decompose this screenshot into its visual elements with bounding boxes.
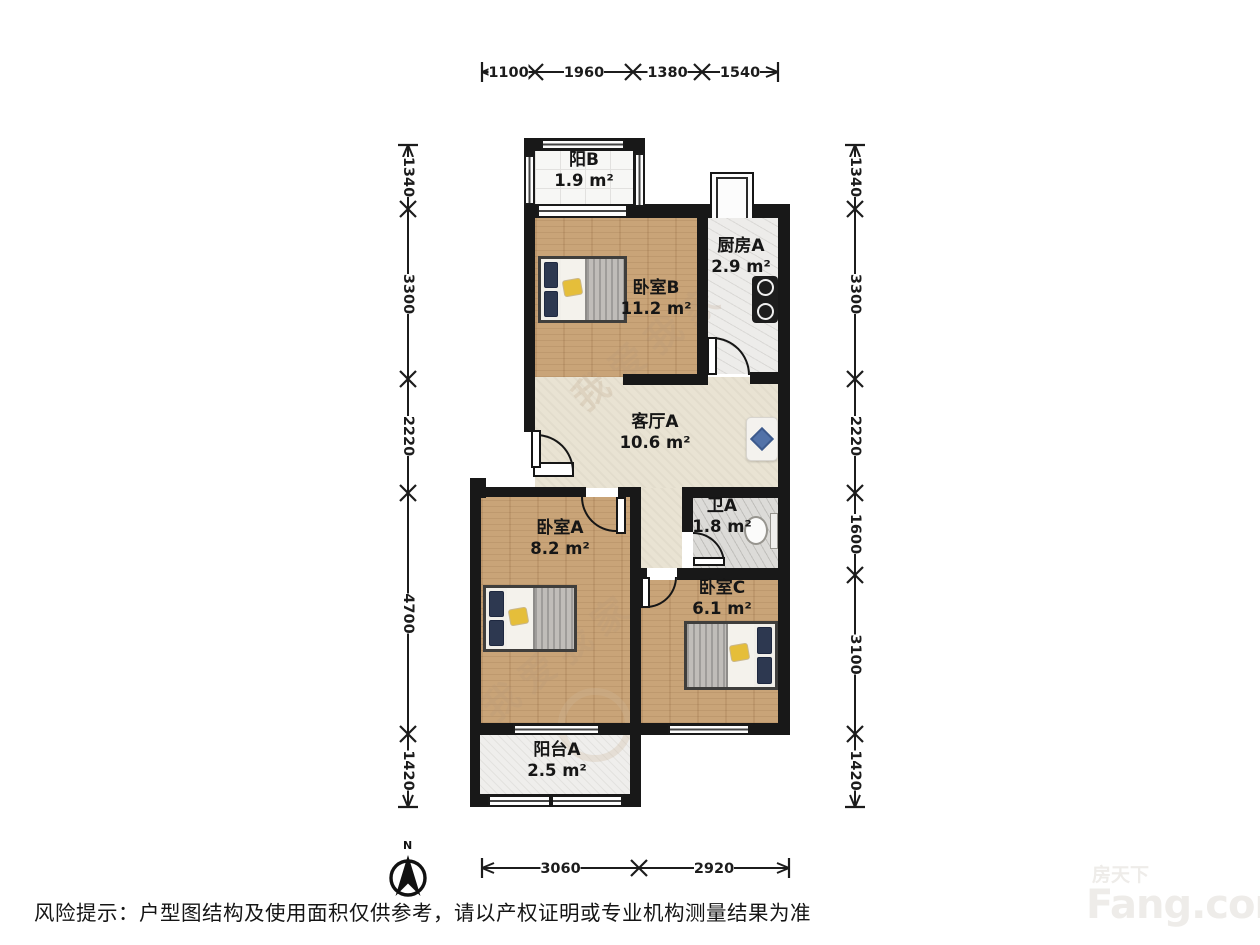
- balcony-a-window-mullion: [549, 795, 553, 807]
- bed-sheet: [728, 624, 754, 687]
- room-label-balcony-a: 阳台A 2.5 m²: [527, 740, 586, 782]
- room-name: 客厅A: [620, 412, 691, 433]
- kitchen-door: [707, 337, 717, 375]
- room-area: 10.6 m²: [620, 433, 691, 454]
- bed-pillows: [541, 259, 561, 320]
- room-area: 2.5 m²: [527, 761, 586, 782]
- svg-text:1340: 1340: [847, 157, 863, 197]
- fang-watermark-en: Fang.com: [1086, 885, 1260, 925]
- hallway-floor: [641, 488, 682, 568]
- room-label-bedroom-c: 卧室C 6.1 m²: [692, 578, 751, 620]
- svg-text:2220: 2220: [847, 416, 863, 456]
- room-area: 11.2 m²: [621, 299, 692, 320]
- wall-segment: [630, 487, 641, 735]
- room-label-bedroom-b: 卧室B 11.2 m²: [621, 278, 692, 320]
- stove-icon: [752, 276, 778, 323]
- room-name: 卧室C: [692, 578, 751, 599]
- room-area: 8.2 m²: [530, 539, 589, 560]
- floor-plan: 我爱我家 我爱我家: [0, 0, 1260, 945]
- room-label-bedroom-a: 卧室A 8.2 m²: [530, 518, 589, 560]
- room-label-bath-a: 卫A 1.8 m²: [692, 496, 751, 538]
- room-area: 1.9 m²: [554, 171, 613, 192]
- bath-door: [693, 557, 725, 566]
- wall-segment: [470, 735, 480, 797]
- room-name: 卫A: [692, 496, 751, 517]
- room-label-balcony-b: 阳B 1.9 m²: [554, 150, 613, 192]
- room-name: 阳B: [554, 150, 613, 171]
- svg-text:3300: 3300: [847, 274, 863, 314]
- wall-segment: [524, 218, 535, 432]
- bedroom-b-bed: [538, 256, 627, 323]
- svg-text:2920: 2920: [694, 861, 734, 877]
- svg-text:3060: 3060: [540, 861, 580, 877]
- armchair-cushion: [750, 427, 774, 451]
- svg-text:1420: 1420: [400, 750, 416, 790]
- bed-accent-pillow: [730, 644, 749, 662]
- room-name: 卧室A: [530, 518, 589, 539]
- armchair-icon: [746, 417, 778, 461]
- balcony-b-slider: [537, 204, 628, 218]
- svg-text:1100: 1100: [488, 65, 528, 81]
- room-label-living-a: 客厅A 10.6 m²: [620, 412, 691, 454]
- room-label-kitchen-a: 厨房A 2.9 m²: [711, 236, 770, 278]
- svg-text:2220: 2220: [400, 416, 416, 456]
- bed-blanket: [687, 624, 728, 687]
- wall-segment: [470, 497, 481, 723]
- bed-accent-pillow: [563, 279, 582, 297]
- burner-icon: [757, 303, 774, 320]
- bed-blanket: [533, 588, 574, 649]
- svg-text:1420: 1420: [847, 750, 863, 790]
- north-label: N: [403, 839, 412, 852]
- room-area: 1.8 m²: [692, 517, 751, 538]
- svg-text:1380: 1380: [647, 65, 687, 81]
- svg-text:3300: 3300: [400, 274, 416, 314]
- balcony-a-window: [488, 795, 623, 807]
- wall-segment: [778, 204, 790, 735]
- balcony-b-left-window: [524, 155, 535, 205]
- bedroom-a-door: [616, 497, 626, 534]
- room-name: 卧室B: [621, 278, 692, 299]
- svg-text:1600: 1600: [847, 514, 863, 554]
- bed-sheet: [507, 588, 533, 649]
- room-name: 阳台A: [527, 740, 586, 761]
- bed-pillows: [754, 624, 775, 687]
- wall-segment: [750, 372, 778, 384]
- wall-segment: [623, 374, 708, 385]
- svg-text:1960: 1960: [564, 65, 604, 81]
- svg-text:1340: 1340: [400, 157, 416, 197]
- bed-accent-pillow: [509, 608, 528, 626]
- room-area: 2.9 m²: [711, 257, 770, 278]
- bed-sheet: [561, 259, 586, 320]
- burner-icon: [757, 279, 774, 296]
- bedroom-c-window: [668, 724, 750, 735]
- bedroom-c-door: [641, 577, 650, 608]
- svg-text:3100: 3100: [847, 634, 863, 674]
- room-area: 6.1 m²: [692, 599, 751, 620]
- bedroom-a-balcony-slider: [513, 724, 600, 735]
- fang-watermark: 房天下 Fang.com: [1086, 866, 1260, 925]
- bedroom-c-bed: [684, 621, 778, 690]
- balcony-b-top-window: [541, 139, 625, 150]
- bed-blanket: [585, 259, 624, 320]
- bedroom-a-bed: [483, 585, 577, 652]
- room-name: 厨房A: [711, 236, 770, 257]
- kitchen-exterior-door: [710, 172, 754, 218]
- wall-segment: [470, 487, 586, 497]
- entrance-door: [531, 430, 541, 468]
- bed-pillows: [486, 588, 507, 649]
- risk-disclaimer: 风险提示：户型图结构及使用面积仅供参考，请以产权证明或专业机构测量结果为准: [34, 896, 811, 926]
- balcony-b-right-window: [634, 153, 645, 207]
- svg-text:4700: 4700: [400, 593, 416, 633]
- svg-text:1540: 1540: [720, 65, 760, 81]
